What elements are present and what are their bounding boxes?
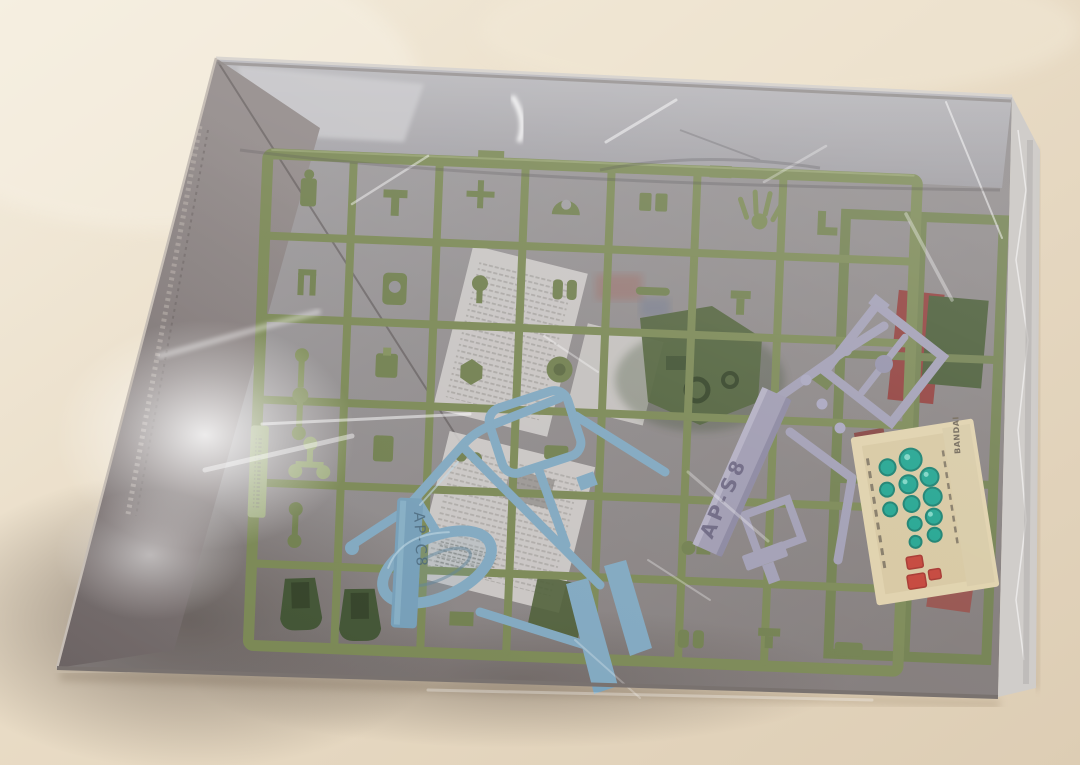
box-right-wall-shade	[1026, 140, 1030, 684]
bag-reflection	[55, 490, 245, 620]
plastic-bag	[55, 58, 1012, 700]
photo-of-model-kit-box: AP-C8 AP-S8	[0, 0, 1080, 765]
